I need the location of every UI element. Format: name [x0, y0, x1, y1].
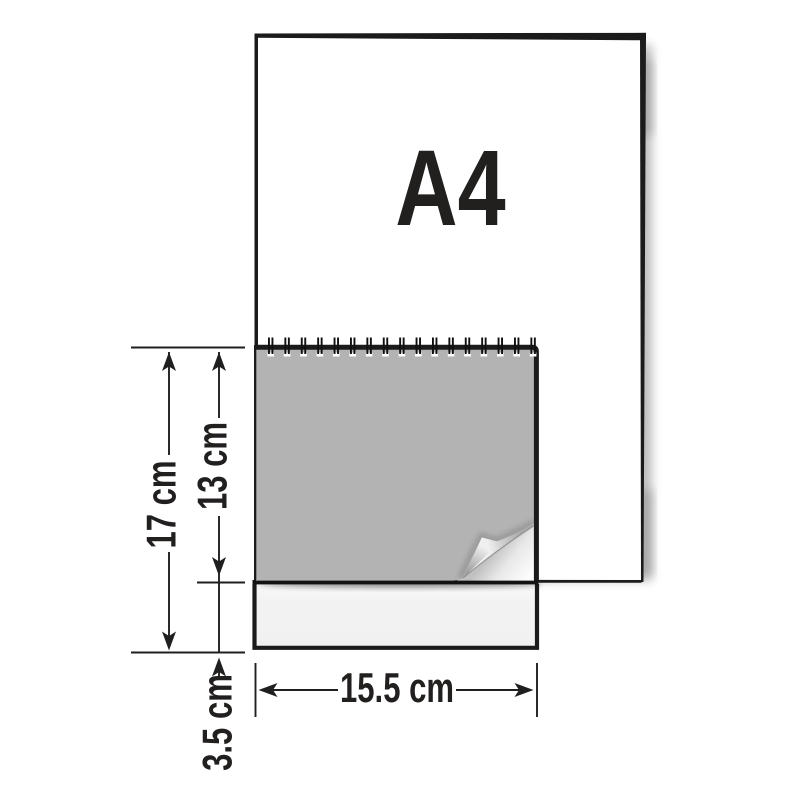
svg-text:A4: A4	[395, 127, 505, 248]
svg-text:3.5 cm: 3.5 cm	[194, 674, 241, 771]
svg-text:15.5 cm: 15.5 cm	[340, 664, 454, 711]
svg-text:13 cm: 13 cm	[189, 422, 236, 510]
svg-text:17 cm: 17 cm	[138, 460, 185, 548]
